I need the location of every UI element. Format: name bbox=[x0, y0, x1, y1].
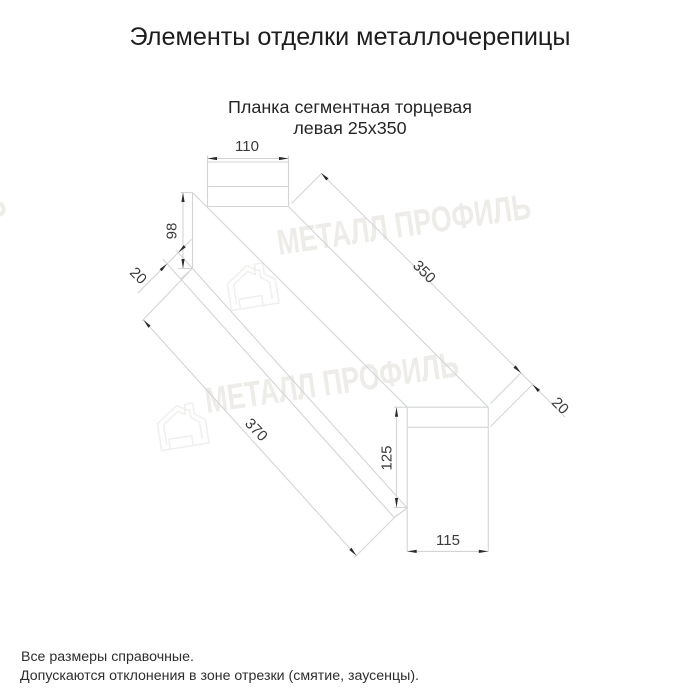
svg-text:МЕТАЛЛ ПРОФИЛЬ: МЕТАЛЛ ПРОФИЛЬ bbox=[202, 343, 461, 420]
svg-text:МЕТАЛЛ ПРОФИЛЬ: МЕТАЛЛ ПРОФИЛЬ bbox=[274, 185, 533, 262]
svg-text:ЛЬ: ЛЬ bbox=[0, 183, 9, 229]
